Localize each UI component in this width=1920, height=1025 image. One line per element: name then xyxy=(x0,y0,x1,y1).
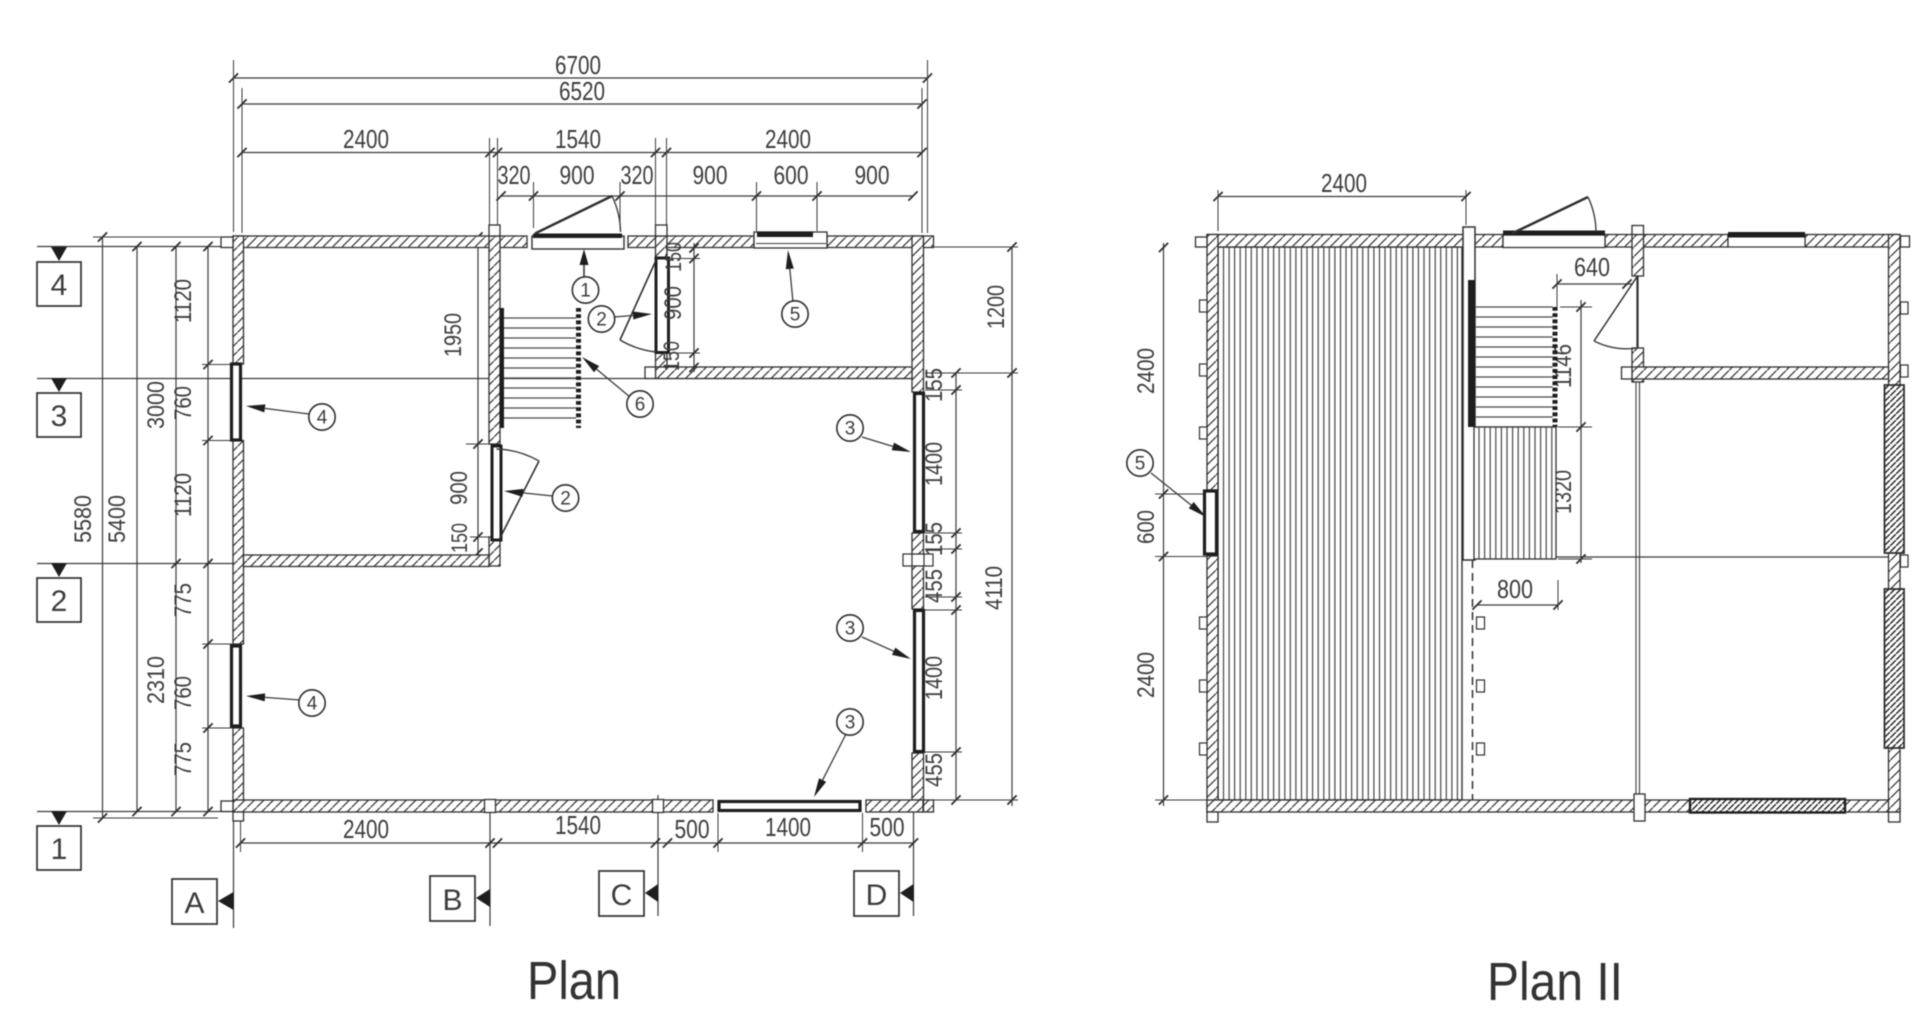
svg-text:2400: 2400 xyxy=(1133,652,1160,698)
svg-text:2400: 2400 xyxy=(343,124,389,154)
svg-text:760: 760 xyxy=(170,386,197,420)
svg-text:5: 5 xyxy=(1135,454,1146,475)
svg-text:900: 900 xyxy=(660,286,687,320)
svg-text:150: 150 xyxy=(659,341,684,371)
svg-text:1540: 1540 xyxy=(555,124,601,154)
svg-text:Plan II: Plan II xyxy=(1487,952,1623,1012)
svg-text:B: B xyxy=(442,884,462,917)
svg-text:900: 900 xyxy=(446,471,473,505)
svg-text:1120: 1120 xyxy=(170,473,197,517)
svg-text:3: 3 xyxy=(845,713,856,734)
svg-text:320: 320 xyxy=(498,160,531,190)
svg-text:2: 2 xyxy=(560,489,571,510)
svg-text:1950: 1950 xyxy=(440,313,467,357)
svg-text:1540: 1540 xyxy=(555,810,601,840)
svg-text:6520: 6520 xyxy=(559,76,605,106)
svg-text:1400: 1400 xyxy=(765,812,811,842)
svg-text:2400: 2400 xyxy=(343,814,389,844)
svg-text:A: A xyxy=(184,887,204,920)
svg-text:5580: 5580 xyxy=(70,495,97,543)
svg-text:1: 1 xyxy=(580,281,591,302)
svg-text:3000: 3000 xyxy=(143,381,170,429)
svg-text:600: 600 xyxy=(774,160,809,190)
svg-text:3: 3 xyxy=(845,419,856,440)
svg-text:760: 760 xyxy=(170,676,197,710)
svg-text:900: 900 xyxy=(693,160,728,190)
svg-text:2400: 2400 xyxy=(1133,348,1160,394)
svg-text:775: 775 xyxy=(170,583,197,617)
svg-text:4: 4 xyxy=(307,694,318,715)
svg-text:C: C xyxy=(611,879,633,912)
svg-text:320: 320 xyxy=(621,160,654,190)
svg-text:2: 2 xyxy=(51,585,68,618)
svg-text:1120: 1120 xyxy=(170,279,197,323)
svg-text:800: 800 xyxy=(1497,574,1533,604)
svg-text:1: 1 xyxy=(51,833,68,866)
svg-text:900: 900 xyxy=(560,160,595,190)
svg-text:1200: 1200 xyxy=(983,285,1010,329)
svg-text:4: 4 xyxy=(51,269,68,302)
svg-text:Plan: Plan xyxy=(527,951,621,1011)
svg-text:455: 455 xyxy=(921,753,948,787)
svg-text:5400: 5400 xyxy=(104,495,131,543)
svg-text:5: 5 xyxy=(790,305,801,326)
svg-text:150: 150 xyxy=(447,523,472,553)
svg-text:4: 4 xyxy=(317,408,328,429)
svg-text:4110: 4110 xyxy=(981,566,1008,610)
svg-text:6: 6 xyxy=(635,395,646,416)
svg-text:500: 500 xyxy=(870,812,905,842)
svg-text:640: 640 xyxy=(1574,252,1610,282)
svg-text:2400: 2400 xyxy=(1321,168,1367,198)
svg-text:150: 150 xyxy=(661,242,686,272)
svg-text:500: 500 xyxy=(675,814,710,844)
svg-text:775: 775 xyxy=(170,742,197,776)
svg-text:3: 3 xyxy=(845,619,856,640)
svg-text:D: D xyxy=(866,879,888,912)
svg-text:3: 3 xyxy=(51,400,68,433)
svg-text:455: 455 xyxy=(921,569,948,603)
svg-text:2400: 2400 xyxy=(765,124,811,154)
svg-text:600: 600 xyxy=(1133,510,1160,544)
svg-text:2: 2 xyxy=(596,310,607,331)
svg-text:900: 900 xyxy=(855,160,890,190)
svg-text:2310: 2310 xyxy=(143,656,170,704)
